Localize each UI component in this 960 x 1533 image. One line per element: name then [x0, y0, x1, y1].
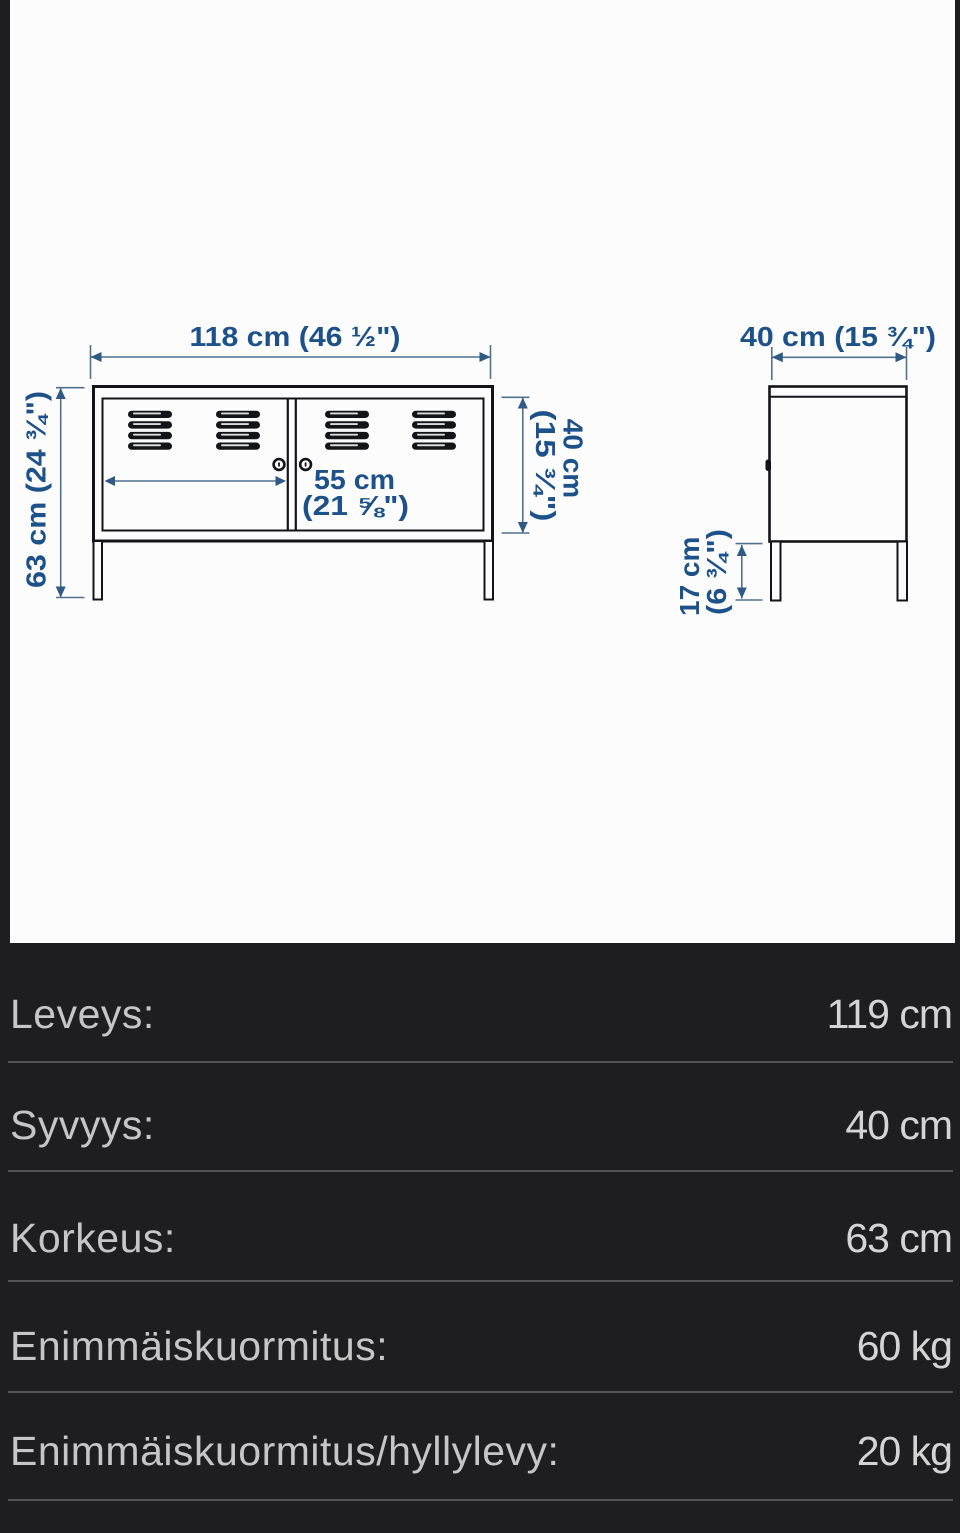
svg-text:(15 ¾"): (15 ¾")	[530, 410, 561, 522]
svg-text:(21 ⅝"): (21 ⅝")	[302, 490, 409, 521]
svg-text:(6 ¾"): (6 ¾")	[701, 529, 732, 615]
svg-text:118 cm (46 ½"): 118 cm (46 ½")	[190, 321, 401, 352]
svg-text:63 cm (24 ¾"): 63 cm (24 ¾")	[21, 391, 52, 588]
